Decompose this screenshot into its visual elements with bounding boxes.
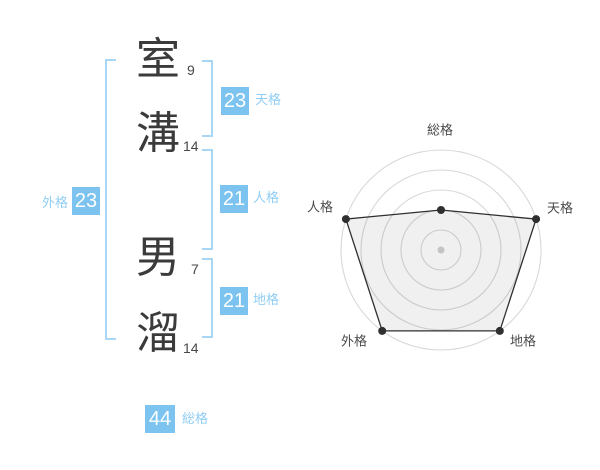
radar-axis-label-2: 天格 <box>547 198 573 217</box>
radar-axis-label-1: 総格 <box>427 120 453 139</box>
radar-axis-label-4: 外格 <box>341 331 367 350</box>
radar-axis-label-3: 地格 <box>510 331 536 350</box>
radar-data-point <box>342 215 350 223</box>
radar-data-point <box>378 327 386 335</box>
radar-data-point <box>496 327 504 335</box>
radar-center-dot <box>438 247 445 254</box>
radar-value-polygon <box>346 210 536 331</box>
radar-data-point <box>437 206 445 214</box>
radar-data-point <box>532 215 540 223</box>
fortune-radar-chart <box>0 0 600 470</box>
radar-axis-label-5: 人格 <box>307 197 333 216</box>
name-analysis-page: 室 溝 男 溜 9 14 7 14 23 天格 21 人格 21 地格 外格 2… <box>0 0 600 470</box>
